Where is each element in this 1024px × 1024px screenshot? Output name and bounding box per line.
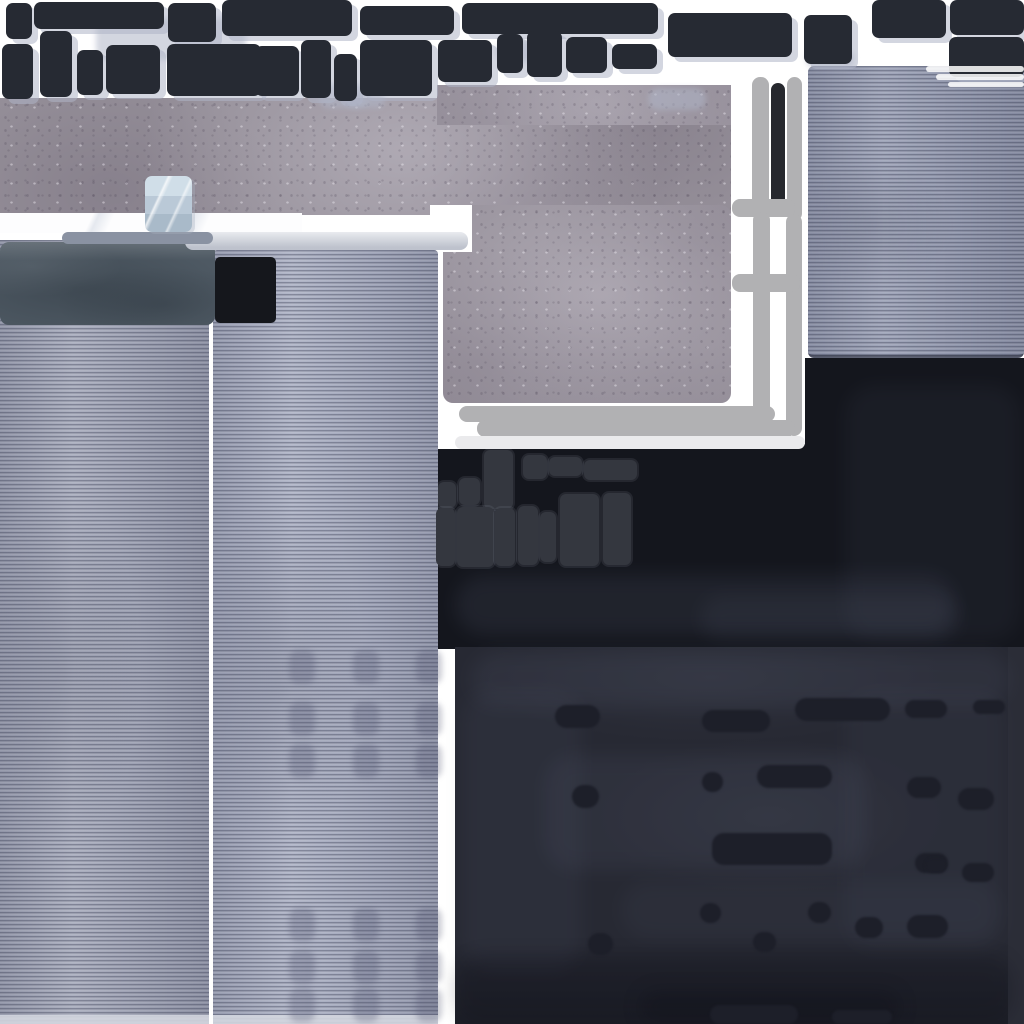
window-pane-row bbox=[339, 59, 352, 96]
window-pane-grid bbox=[12, 9, 26, 33]
window-sprite bbox=[334, 54, 357, 101]
window-pane-row bbox=[112, 51, 154, 68]
window-pane-grid bbox=[261, 52, 293, 90]
window-shadow-blob bbox=[496, 40, 540, 62]
panel-left-bottom-edge bbox=[0, 1015, 209, 1024]
ledge-bar-blue bbox=[62, 232, 213, 244]
window-pane-grid bbox=[573, 44, 600, 66]
texture-atlas-canvas bbox=[0, 0, 1024, 1024]
window-pane-grid bbox=[618, 50, 651, 63]
window-pane-row bbox=[676, 21, 784, 49]
window-sprite bbox=[668, 13, 792, 57]
window-pane-grid bbox=[8, 50, 27, 93]
window-pane-grid bbox=[367, 47, 425, 89]
window-pane-row bbox=[813, 24, 843, 55]
window-sprite bbox=[438, 40, 492, 82]
window-pane-row bbox=[469, 10, 651, 27]
rooftop-ac-unit bbox=[145, 176, 192, 232]
window-shadow-blob bbox=[96, 18, 246, 60]
paint-mark-gray bbox=[732, 199, 795, 217]
dark-wall-sheet-right bbox=[805, 358, 1024, 453]
window-sprite bbox=[168, 3, 216, 42]
window-pane-row bbox=[533, 56, 556, 71]
corrugated-panel-right bbox=[808, 66, 1024, 358]
window-pane-grid bbox=[469, 10, 651, 27]
paint-mark-black bbox=[771, 83, 785, 213]
concrete-slab-step bbox=[437, 85, 731, 125]
paint-mark-gray bbox=[732, 274, 800, 292]
window-pane-row bbox=[957, 7, 1017, 28]
window-pane-row bbox=[230, 8, 344, 28]
window-pane-grid bbox=[503, 40, 517, 67]
window-sprite bbox=[527, 31, 562, 77]
window-pane-row bbox=[47, 38, 65, 90]
window-pane-row bbox=[12, 9, 26, 33]
panel-middle-bottom-edge bbox=[213, 1015, 438, 1024]
window-pane-row bbox=[533, 37, 556, 52]
window-sprite bbox=[612, 44, 657, 69]
window-pane-grid bbox=[533, 37, 556, 71]
window-pane-row bbox=[367, 47, 425, 89]
window-pane-grid bbox=[880, 8, 938, 30]
window-sprite bbox=[2, 44, 33, 99]
window-sprite bbox=[40, 31, 72, 97]
window-pane-grid bbox=[112, 51, 154, 88]
window-pane-grid bbox=[957, 7, 1017, 28]
window-pane-row bbox=[261, 71, 293, 90]
window-pane-grid bbox=[83, 56, 97, 89]
window-pane-row bbox=[83, 56, 97, 89]
asphalt-roof-sheet bbox=[455, 647, 1024, 1024]
window-pane-row bbox=[261, 52, 293, 67]
window-pane-row bbox=[112, 72, 154, 89]
window-pane-row bbox=[307, 46, 325, 92]
window-pane-row bbox=[618, 50, 651, 63]
window-sprite bbox=[360, 40, 432, 96]
paint-mark-gray bbox=[786, 214, 802, 436]
window-sprite bbox=[34, 2, 164, 29]
window-pane-grid bbox=[813, 24, 843, 55]
window-sprite bbox=[566, 37, 607, 73]
window-pane-grid bbox=[41, 9, 157, 22]
window-sprite bbox=[106, 45, 160, 94]
window-sprite bbox=[167, 44, 261, 96]
paint-mark-gray bbox=[753, 212, 770, 437]
window-pane-grid bbox=[176, 11, 208, 34]
window-sprite bbox=[950, 0, 1024, 35]
ac-unit-bottom-slab bbox=[145, 214, 192, 232]
window-pane-grid bbox=[676, 21, 784, 49]
window-pane-row bbox=[176, 11, 208, 34]
window-pane-grid bbox=[445, 47, 485, 75]
window-pane-grid bbox=[174, 51, 254, 89]
window-sprite bbox=[872, 0, 946, 38]
window-pane-grid bbox=[47, 38, 65, 90]
window-sprite bbox=[462, 3, 658, 34]
roof-cap-slab bbox=[0, 242, 215, 325]
ledge-bar-light bbox=[185, 232, 468, 250]
window-sprite bbox=[6, 3, 32, 39]
window-pane-row bbox=[174, 73, 254, 90]
asphalt-edge-strip bbox=[1008, 647, 1024, 1024]
window-pane-row bbox=[8, 50, 27, 74]
window-pane-row bbox=[573, 44, 600, 66]
window-pane-row bbox=[41, 9, 157, 22]
ac-unit-top-slab bbox=[145, 176, 192, 196]
window-pane-row bbox=[503, 40, 517, 67]
window-sprite bbox=[301, 40, 331, 98]
window-pane-row bbox=[8, 78, 27, 93]
dark-wall-sheet bbox=[438, 449, 1024, 649]
window-sprite bbox=[804, 15, 852, 64]
window-sprite bbox=[222, 0, 352, 36]
window-pane-grid bbox=[230, 8, 344, 28]
window-pane-row bbox=[445, 47, 485, 75]
corrugated-panel-middle bbox=[213, 250, 438, 1024]
window-pane-grid bbox=[339, 59, 352, 96]
paint-mark-gray bbox=[477, 420, 795, 437]
paint-mark-gray bbox=[787, 77, 802, 221]
window-sprite bbox=[360, 6, 454, 35]
paint-mark-gray bbox=[752, 77, 769, 214]
window-pane-row bbox=[880, 8, 938, 30]
window-pane-grid bbox=[307, 46, 325, 92]
paint-mark-gray bbox=[459, 406, 775, 422]
window-sprite bbox=[77, 50, 103, 95]
corrugated-panel-left bbox=[0, 240, 209, 1024]
dark-wall-sheet-join bbox=[733, 444, 807, 452]
window-sprite bbox=[255, 46, 299, 96]
window-pane-grid bbox=[366, 12, 448, 29]
window-pane-row bbox=[174, 51, 254, 68]
window-pane-row bbox=[366, 12, 448, 29]
ac-unit-middle-slab bbox=[145, 196, 192, 214]
window-sprite bbox=[497, 34, 523, 73]
concrete-slab-square bbox=[443, 205, 731, 403]
